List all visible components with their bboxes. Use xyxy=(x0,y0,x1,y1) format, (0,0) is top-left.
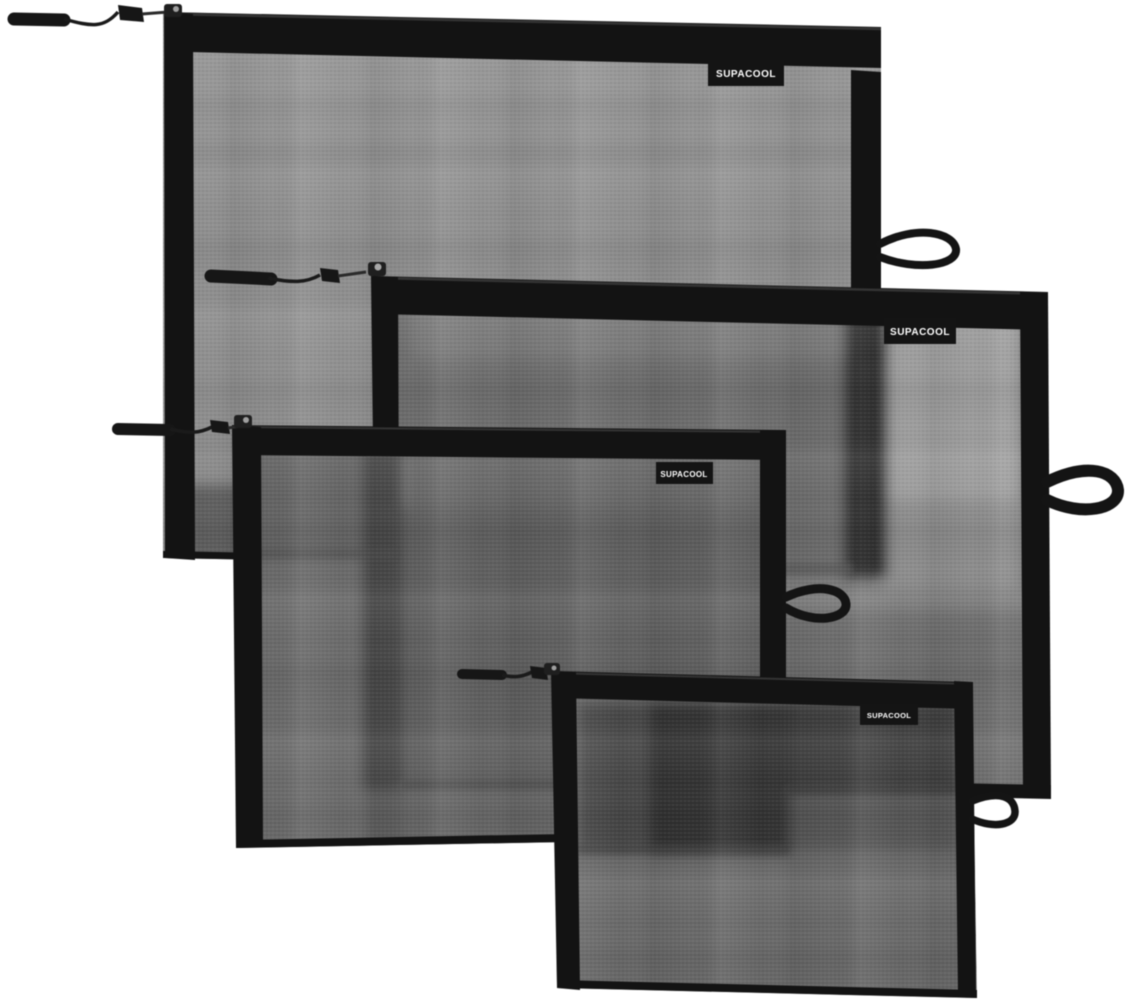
svg-text:SUPACOOL: SUPACOOL xyxy=(716,69,776,80)
svg-text:SUPACOOL: SUPACOOL xyxy=(890,327,950,338)
svg-text:SUPACOOL: SUPACOOL xyxy=(867,711,911,720)
svg-text:SUPACOOL: SUPACOOL xyxy=(660,470,707,479)
